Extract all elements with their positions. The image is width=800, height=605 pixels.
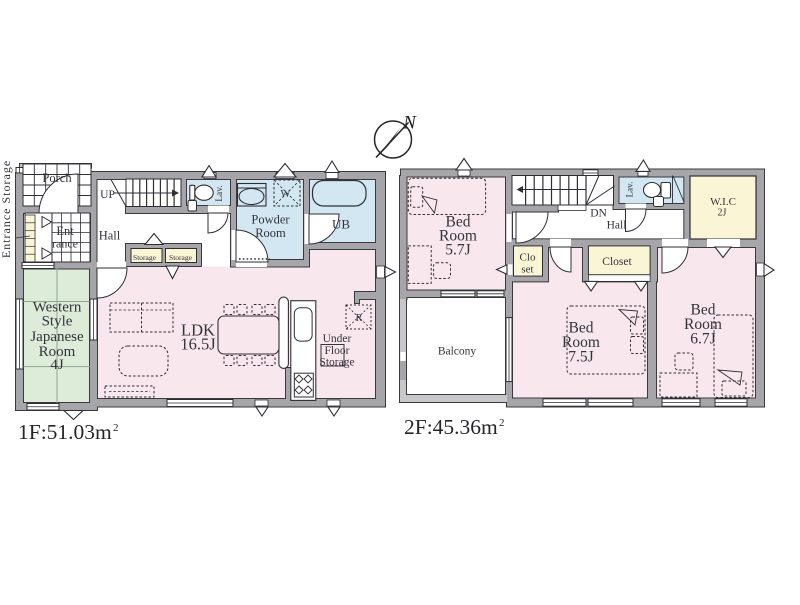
svg-text:2: 2 (113, 422, 119, 434)
svg-text:Lav.: Lav. (625, 182, 635, 198)
svg-text:R: R (356, 313, 363, 324)
svg-text:7.5J: 7.5J (568, 349, 593, 366)
svg-text:4J: 4J (50, 357, 64, 373)
svg-text:5.7J: 5.7J (445, 242, 470, 259)
svg-text:DN: DN (590, 208, 607, 220)
svg-text:Powder: Powder (251, 213, 290, 227)
svg-text:Floor: Floor (325, 345, 350, 357)
svg-text:UP: UP (100, 189, 115, 201)
svg-text:Entrance Storage: Entrance Storage (0, 160, 13, 258)
svg-text:2J: 2J (718, 208, 727, 219)
svg-text:2F:45.36m: 2F:45.36m (404, 415, 498, 439)
svg-text:UB: UB (332, 217, 350, 232)
svg-text:rance: rance (52, 237, 78, 251)
svg-text:set: set (521, 264, 533, 276)
svg-text:Porch: Porch (42, 171, 72, 185)
svg-text:16.5J: 16.5J (180, 335, 216, 354)
svg-text:Style: Style (42, 314, 73, 330)
svg-text:Clo: Clo (520, 252, 536, 264)
svg-text:N: N (402, 113, 417, 134)
svg-text:Hall: Hall (607, 220, 627, 232)
svg-text:W.I.C: W.I.C (710, 196, 736, 208)
svg-text:Storage: Storage (169, 253, 193, 262)
svg-text:Under: Under (323, 333, 352, 345)
svg-text:Hall: Hall (99, 229, 121, 243)
svg-text:W: W (281, 189, 291, 200)
svg-text:Closet: Closet (602, 256, 632, 268)
svg-text:Balcony: Balcony (438, 346, 477, 358)
svg-text:Japanese: Japanese (30, 329, 84, 345)
svg-text:Lav.: Lav. (215, 185, 225, 202)
svg-text:6.7J: 6.7J (690, 331, 715, 348)
svg-text:2: 2 (499, 417, 505, 429)
svg-text:Storage: Storage (133, 253, 157, 262)
svg-text:1F:51.03m: 1F:51.03m (18, 420, 112, 444)
svg-text:Storage: Storage (319, 357, 354, 369)
svg-text:Room: Room (255, 226, 286, 240)
